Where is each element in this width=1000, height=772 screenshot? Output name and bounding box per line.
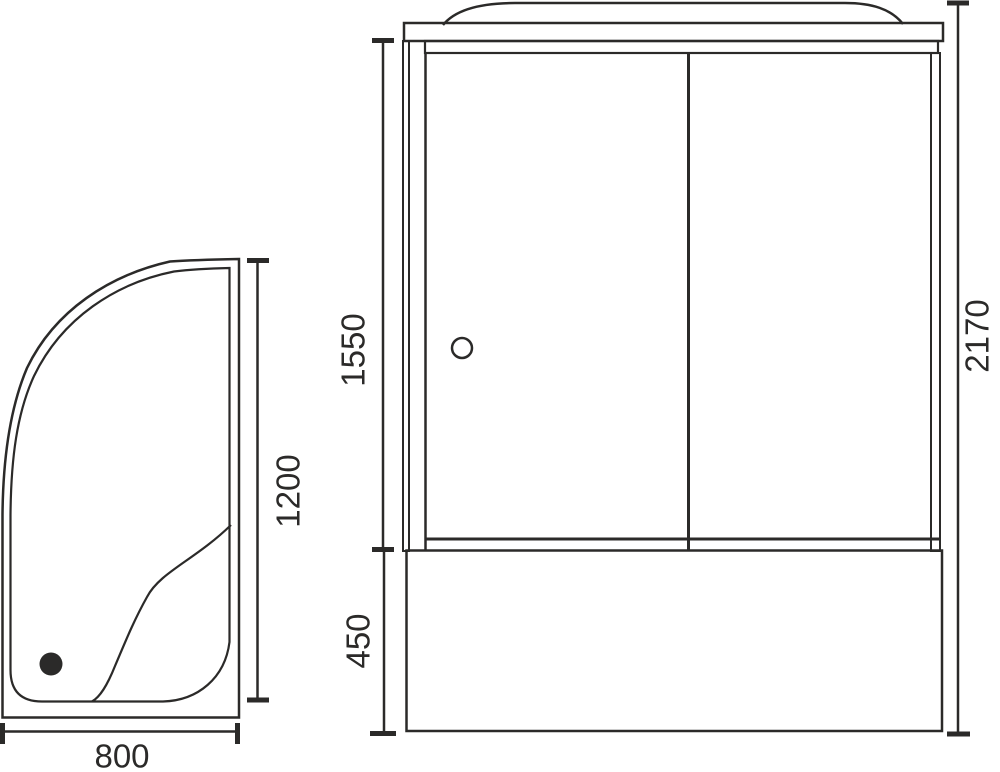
tray-outer-contour bbox=[3, 259, 240, 718]
dimension-label-1550: 1550 bbox=[335, 313, 372, 386]
top-frame-bar bbox=[404, 23, 943, 41]
dimension-label-450: 450 bbox=[340, 613, 377, 668]
dimension-label-2170: 2170 bbox=[959, 299, 996, 372]
dimension-1200: 1200 bbox=[247, 260, 307, 700]
drawing-page: 1200 800 1550 bbox=[0, 0, 1000, 772]
top-door-rail bbox=[425, 41, 938, 53]
drain-hole bbox=[40, 653, 63, 676]
tray-seat-curve bbox=[92, 525, 231, 702]
dimension-label-800: 800 bbox=[94, 738, 149, 772]
cabin-front-view bbox=[403, 3, 943, 731]
dimension-label-1200: 1200 bbox=[270, 454, 307, 527]
dimension-450: 450 bbox=[340, 550, 397, 734]
right-frame-profile bbox=[931, 53, 940, 551]
dimension-800: 800 bbox=[2, 723, 238, 772]
tray-inner-rim bbox=[11, 268, 230, 702]
left-frame-profile bbox=[403, 41, 409, 551]
dimension-1550: 1550 bbox=[335, 41, 395, 550]
roof-dome bbox=[443, 3, 903, 25]
technical-drawing-canvas: 1200 800 1550 bbox=[0, 0, 1000, 772]
bathtub-base-panel bbox=[407, 551, 943, 732]
dimension-2170: 2170 bbox=[947, 3, 996, 734]
door-handle bbox=[452, 338, 472, 358]
tray-top-view bbox=[3, 259, 240, 718]
